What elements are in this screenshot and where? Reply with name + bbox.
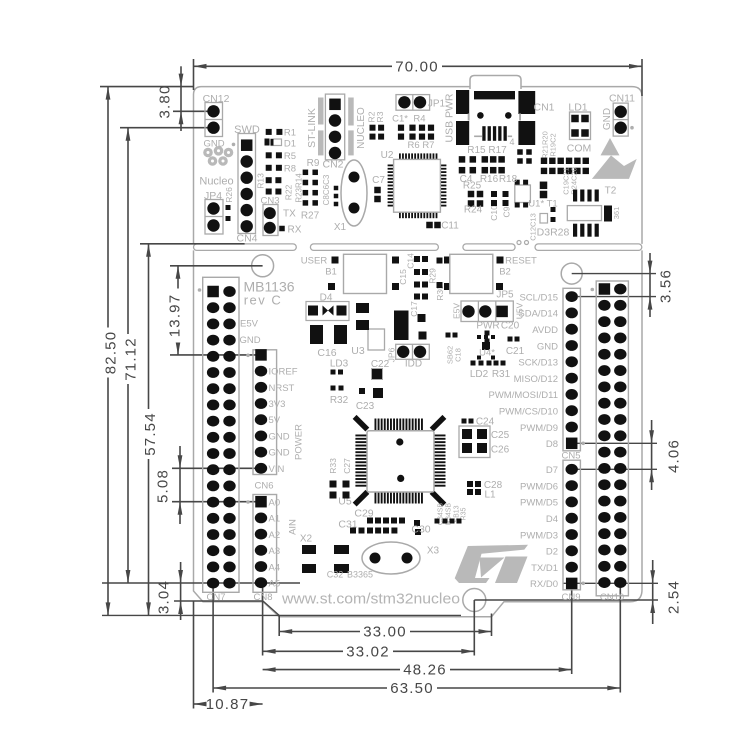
svg-text:X3: X3: [427, 546, 440, 557]
svg-text:C11: C11: [441, 221, 459, 232]
svg-text:T2: T2: [605, 186, 617, 197]
svg-text:R6 R7: R6 R7: [408, 140, 435, 151]
svg-text:PWM/CS/D10: PWM/CS/D10: [499, 407, 558, 418]
svg-text:R13: R13: [255, 173, 265, 189]
svg-text:A1: A1: [269, 514, 281, 525]
svg-text:R22: R22: [283, 184, 293, 200]
svg-text:R18: R18: [499, 174, 518, 185]
svg-text:A0: A0: [269, 498, 281, 509]
svg-text:X1: X1: [334, 222, 347, 233]
svg-text:82.50: 82.50: [102, 331, 119, 375]
svg-text:C1*: C1*: [392, 114, 408, 125]
svg-text:R29: R29: [427, 268, 437, 284]
svg-text:A4: A4: [269, 562, 281, 573]
svg-text:R8: R8: [284, 164, 296, 175]
svg-text:C30: C30: [411, 524, 430, 536]
svg-text:R19C2: R19C2: [549, 133, 558, 156]
svg-text:R5: R5: [284, 151, 296, 162]
svg-text:R15 R17: R15 R17: [467, 145, 507, 156]
svg-text:R27: R27: [301, 211, 320, 222]
svg-text:CN12: CN12: [203, 93, 230, 105]
svg-text:10.87: 10.87: [206, 696, 250, 713]
svg-text:71.12: 71.12: [122, 337, 139, 381]
svg-text:www.st.com/stm32nucleo: www.st.com/stm32nucleo: [281, 592, 460, 608]
svg-text:48.26: 48.26: [403, 662, 447, 679]
svg-text:GND: GND: [602, 108, 613, 130]
svg-text:A3: A3: [269, 546, 281, 557]
svg-text:AIN: AIN: [287, 519, 298, 535]
svg-text:4: 4: [509, 137, 514, 147]
svg-text:5.08: 5.08: [154, 469, 171, 503]
svg-text:33.02: 33.02: [346, 643, 390, 660]
svg-text:D7: D7: [546, 465, 558, 476]
svg-text:D2: D2: [546, 547, 558, 558]
svg-text:3.56: 3.56: [657, 269, 674, 303]
svg-text:57.54: 57.54: [142, 412, 159, 456]
svg-text:SDA/D14: SDA/D14: [518, 309, 558, 320]
svg-text:C18: C18: [454, 348, 463, 362]
svg-text:C23: C23: [356, 401, 375, 412]
svg-text:R32: R32: [330, 395, 349, 406]
svg-text:C20: C20: [501, 321, 520, 332]
svg-text:AVDD: AVDD: [532, 325, 558, 336]
svg-text:RX: RX: [288, 225, 302, 236]
svg-text:L1: L1: [484, 490, 496, 501]
svg-text:C10: C10: [489, 205, 499, 221]
svg-text:63.50: 63.50: [390, 680, 434, 697]
svg-text:GND: GND: [537, 341, 558, 352]
svg-text:2.54: 2.54: [665, 580, 682, 614]
svg-text:C8C6C3: C8C6C3: [322, 174, 331, 205]
svg-text:USB PWR: USB PWR: [444, 93, 456, 142]
svg-text:U2: U2: [381, 150, 394, 161]
svg-text:C32: C32: [327, 570, 344, 580]
svg-text:U3: U3: [351, 345, 365, 357]
svg-text:D8: D8: [546, 439, 558, 450]
svg-text:CN6: CN6: [254, 481, 273, 492]
svg-text:C14: C14: [405, 253, 415, 269]
svg-text:E5V: E5V: [240, 319, 259, 330]
svg-text:C21: C21: [506, 346, 525, 357]
svg-text:SCK/D13: SCK/D13: [518, 358, 558, 369]
svg-text:R24: R24: [464, 205, 483, 216]
svg-text:JP5: JP5: [496, 290, 514, 301]
svg-text:R26: R26: [224, 187, 234, 203]
svg-text:JP6: JP6: [386, 347, 396, 362]
svg-text:R35: R35: [460, 507, 467, 520]
svg-text:Nucleo: Nucleo: [199, 176, 233, 188]
svg-text:3.04: 3.04: [155, 580, 172, 614]
svg-text:R3: R3: [375, 111, 385, 122]
svg-text:C15: C15: [398, 269, 408, 285]
svg-text:X2: X2: [300, 534, 313, 545]
svg-text:LD3: LD3: [330, 359, 349, 370]
svg-text:NUCLEO: NUCLEO: [356, 107, 367, 149]
svg-text:A5: A5: [269, 579, 281, 590]
svg-text:VIN: VIN: [269, 464, 285, 475]
svg-text:C26: C26: [491, 445, 510, 456]
svg-text:C17: C17: [409, 301, 419, 317]
svg-text:LD2: LD2: [470, 369, 489, 380]
svg-text:ST-LINK: ST-LINK: [306, 108, 318, 148]
svg-text:PWM/D6: PWM/D6: [520, 481, 558, 492]
svg-text:USER: USER: [301, 256, 328, 267]
svg-text:CN1: CN1: [533, 102, 554, 114]
svg-text:3.80: 3.80: [156, 85, 173, 119]
svg-text:C25: C25: [491, 430, 510, 441]
svg-text:POWER: POWER: [293, 424, 304, 460]
svg-text:C9: C9: [501, 206, 511, 217]
svg-text:R16: R16: [480, 174, 499, 185]
svg-text:33.00: 33.00: [363, 624, 407, 641]
svg-text:GND: GND: [239, 335, 260, 346]
svg-text:D1: D1: [284, 139, 296, 150]
svg-text:U4*: U4*: [479, 348, 495, 359]
svg-text:TX/D1: TX/D1: [531, 563, 558, 574]
svg-text:CN10: CN10: [600, 592, 624, 603]
svg-text:MISO/D12: MISO/D12: [514, 374, 558, 385]
svg-text:A2: A2: [269, 530, 281, 541]
svg-text:CN8: CN8: [253, 592, 272, 603]
svg-text:R25: R25: [463, 181, 482, 192]
svg-text:E5V: E5V: [451, 303, 461, 319]
svg-text:R4: R4: [413, 114, 425, 125]
svg-text:RESET: RESET: [505, 256, 537, 267]
svg-text:D4: D4: [546, 514, 558, 525]
svg-text:RX/D0: RX/D0: [530, 579, 558, 590]
svg-text:5V: 5V: [269, 415, 281, 426]
svg-text:TX: TX: [283, 209, 296, 220]
svg-text:361: 361: [612, 207, 621, 220]
svg-text:C12C13: C12C13: [529, 213, 538, 241]
svg-text:CN9: CN9: [561, 592, 580, 603]
svg-text:PWM/MOSI/D11: PWM/MOSI/D11: [489, 390, 559, 401]
svg-text:B2: B2: [499, 267, 511, 278]
svg-text:C7: C7: [372, 175, 385, 186]
svg-text:R1: R1: [284, 128, 296, 139]
svg-text:IDD: IDD: [405, 359, 422, 370]
svg-text:PWM/D5: PWM/D5: [520, 498, 558, 509]
svg-text:13.97: 13.97: [166, 294, 183, 338]
svg-text:C16: C16: [317, 347, 336, 359]
svg-text:CN4: CN4: [236, 233, 257, 245]
svg-text:IOREF: IOREF: [269, 367, 298, 378]
svg-text:CN7: CN7: [206, 592, 225, 603]
svg-text:R23R14: R23R14: [294, 173, 303, 203]
svg-text:D3R28: D3R28: [537, 227, 570, 239]
svg-text:JP4: JP4: [204, 190, 222, 202]
svg-text:B3365: B3365: [347, 570, 373, 580]
svg-text:70.00: 70.00: [395, 59, 439, 76]
svg-text:rev C: rev C: [244, 293, 283, 308]
svg-text:PWM/D9: PWM/D9: [520, 423, 558, 434]
svg-text:GND: GND: [269, 431, 290, 442]
svg-text:C27: C27: [342, 458, 352, 474]
svg-text:GND: GND: [269, 448, 290, 459]
svg-text:COM: COM: [567, 143, 592, 155]
svg-text:NRST: NRST: [269, 383, 295, 394]
svg-text:PWR: PWR: [476, 321, 499, 332]
svg-text:CN2: CN2: [322, 159, 343, 171]
svg-text:R33: R33: [328, 458, 338, 474]
svg-text:PWM/D3: PWM/D3: [520, 530, 558, 541]
svg-text:B1: B1: [325, 267, 337, 278]
svg-text:4.06: 4.06: [665, 439, 682, 473]
svg-text:R9: R9: [307, 158, 320, 169]
svg-text:R31: R31: [492, 369, 511, 380]
svg-text:3V3: 3V3: [269, 399, 286, 410]
svg-text:SCL/D15: SCL/D15: [519, 292, 558, 303]
